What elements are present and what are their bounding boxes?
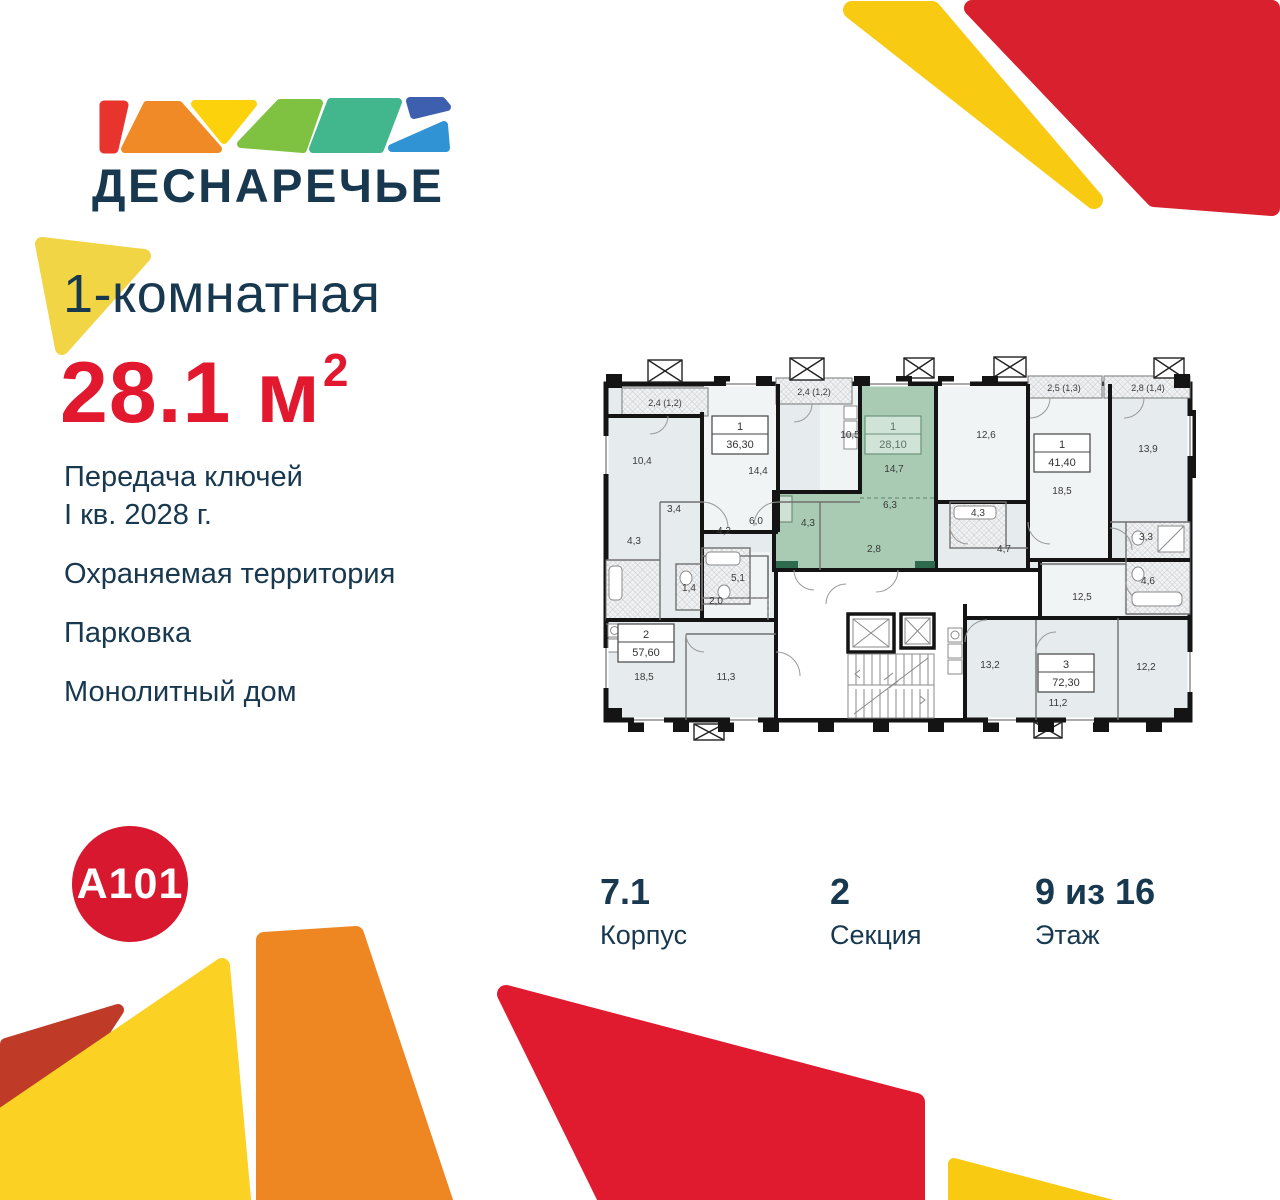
apt-box-57-60: 2 57,60 [618, 624, 674, 662]
detail-building: 7.1 Корпус [600, 874, 830, 951]
stairs [848, 654, 934, 718]
building-label: Корпус [600, 920, 830, 951]
decor-bottomright-yellow-triangle [954, 1164, 1128, 1200]
svg-text:13,2: 13,2 [980, 660, 1000, 671]
svg-text:2,4 (1,2): 2,4 (1,2) [648, 398, 682, 408]
apt-box-41-40: 1 41,40 [1034, 434, 1090, 472]
svg-text:1: 1 [1059, 439, 1065, 451]
svg-text:11,3: 11,3 [717, 672, 736, 683]
decor-bottom-orange-shape [264, 934, 448, 1200]
svg-text:57,60: 57,60 [632, 647, 660, 659]
svg-text:3,4: 3,4 [667, 504, 681, 515]
building-value: 7.1 [600, 874, 830, 910]
svg-text:36,30: 36,30 [726, 439, 754, 451]
brand-logo-text: ДЕСНАРЕЧЬЕ [92, 158, 445, 213]
area-value: 28.1 [60, 345, 231, 441]
svg-text:18,5: 18,5 [634, 672, 654, 683]
apartment-area: 28.1 м2 [60, 344, 348, 443]
svg-text:4,3: 4,3 [627, 536, 641, 547]
section-label: Секция [830, 920, 1035, 951]
svg-text:12,5: 12,5 [1072, 592, 1092, 603]
svg-text:2,4 (1,2): 2,4 (1,2) [797, 387, 831, 397]
apt-box-36-30: 1 36,30 [712, 416, 768, 454]
detail-section: 2 Секция [830, 874, 1035, 951]
svg-text:2,5 (1,3): 2,5 (1,3) [1047, 383, 1081, 393]
decor-bottom-red-shape [506, 994, 916, 1200]
svg-text:1: 1 [890, 421, 896, 433]
svg-text:3: 3 [1063, 659, 1069, 671]
decor-bottom-yellow-triangle [2, 966, 244, 1200]
area-exponent: 2 [323, 344, 350, 396]
floor-plan: 1 36,30 1 28,10 1 41,40 2 57,60 3 72,30 [598, 352, 1210, 749]
svg-text:6,0: 6,0 [749, 516, 763, 527]
svg-text:12,2: 12,2 [1136, 662, 1156, 673]
svg-text:1,4: 1,4 [682, 583, 696, 594]
feature-guarded-territory: Охраняемая территория [64, 555, 395, 593]
svg-text:6,3: 6,3 [883, 500, 897, 511]
svg-text:14,4: 14,4 [748, 466, 768, 477]
floor-label: Этаж [1035, 920, 1155, 951]
svg-text:11,2: 11,2 [1049, 698, 1068, 709]
detail-floor: 9 из 16 Этаж [1035, 874, 1155, 951]
svg-text:13,9: 13,9 [1138, 444, 1158, 455]
svg-text:10,5: 10,5 [840, 430, 860, 441]
svg-text:2,0: 2,0 [709, 596, 723, 607]
svg-text:4,7: 4,7 [997, 544, 1011, 555]
svg-text:4,3: 4,3 [971, 508, 985, 519]
svg-text:4,6: 4,6 [1141, 576, 1155, 587]
svg-text:2,8 (1,4): 2,8 (1,4) [1131, 383, 1165, 393]
brand-logo-icon [95, 94, 455, 158]
apt-box-28-10-highlighted: 1 28,10 [865, 416, 921, 454]
svg-text:12,6: 12,6 [976, 430, 996, 441]
svg-text:5,1: 5,1 [731, 573, 745, 584]
svg-text:1: 1 [737, 421, 743, 433]
svg-text:2,8: 2,8 [867, 544, 881, 555]
feature-monolith-house: Монолитный дом [64, 673, 395, 711]
svg-text:4,2: 4,2 [717, 526, 731, 537]
feature-list: Передача ключей I кв. 2028 г. Охраняемая… [64, 458, 395, 732]
elevator-shafts [848, 614, 934, 652]
svg-text:4,3: 4,3 [801, 518, 815, 529]
svg-text:72,30: 72,30 [1052, 677, 1080, 689]
page-title: 1-комнатная [63, 263, 380, 325]
developer-logo: A101 [72, 826, 188, 942]
svg-text:2: 2 [643, 629, 649, 641]
svg-text:28,10: 28,10 [879, 439, 907, 451]
listing-details: 7.1 Корпус 2 Секция 9 из 16 Этаж [600, 874, 1155, 951]
floor-value: 9 из 16 [1035, 874, 1155, 910]
section-value: 2 [830, 874, 1035, 910]
apt-box-72-30: 3 72,30 [1038, 654, 1094, 692]
area-unit: м [256, 345, 321, 441]
feature-parking: Парковка [64, 614, 395, 652]
svg-text:14,7: 14,7 [884, 464, 904, 475]
svg-text:3,3: 3,3 [1139, 532, 1153, 543]
feature-keys-handover: Передача ключей I кв. 2028 г. [64, 458, 395, 534]
svg-text:41,40: 41,40 [1048, 457, 1076, 469]
svg-text:10,4: 10,4 [632, 456, 652, 467]
svg-text:18,5: 18,5 [1052, 486, 1072, 497]
